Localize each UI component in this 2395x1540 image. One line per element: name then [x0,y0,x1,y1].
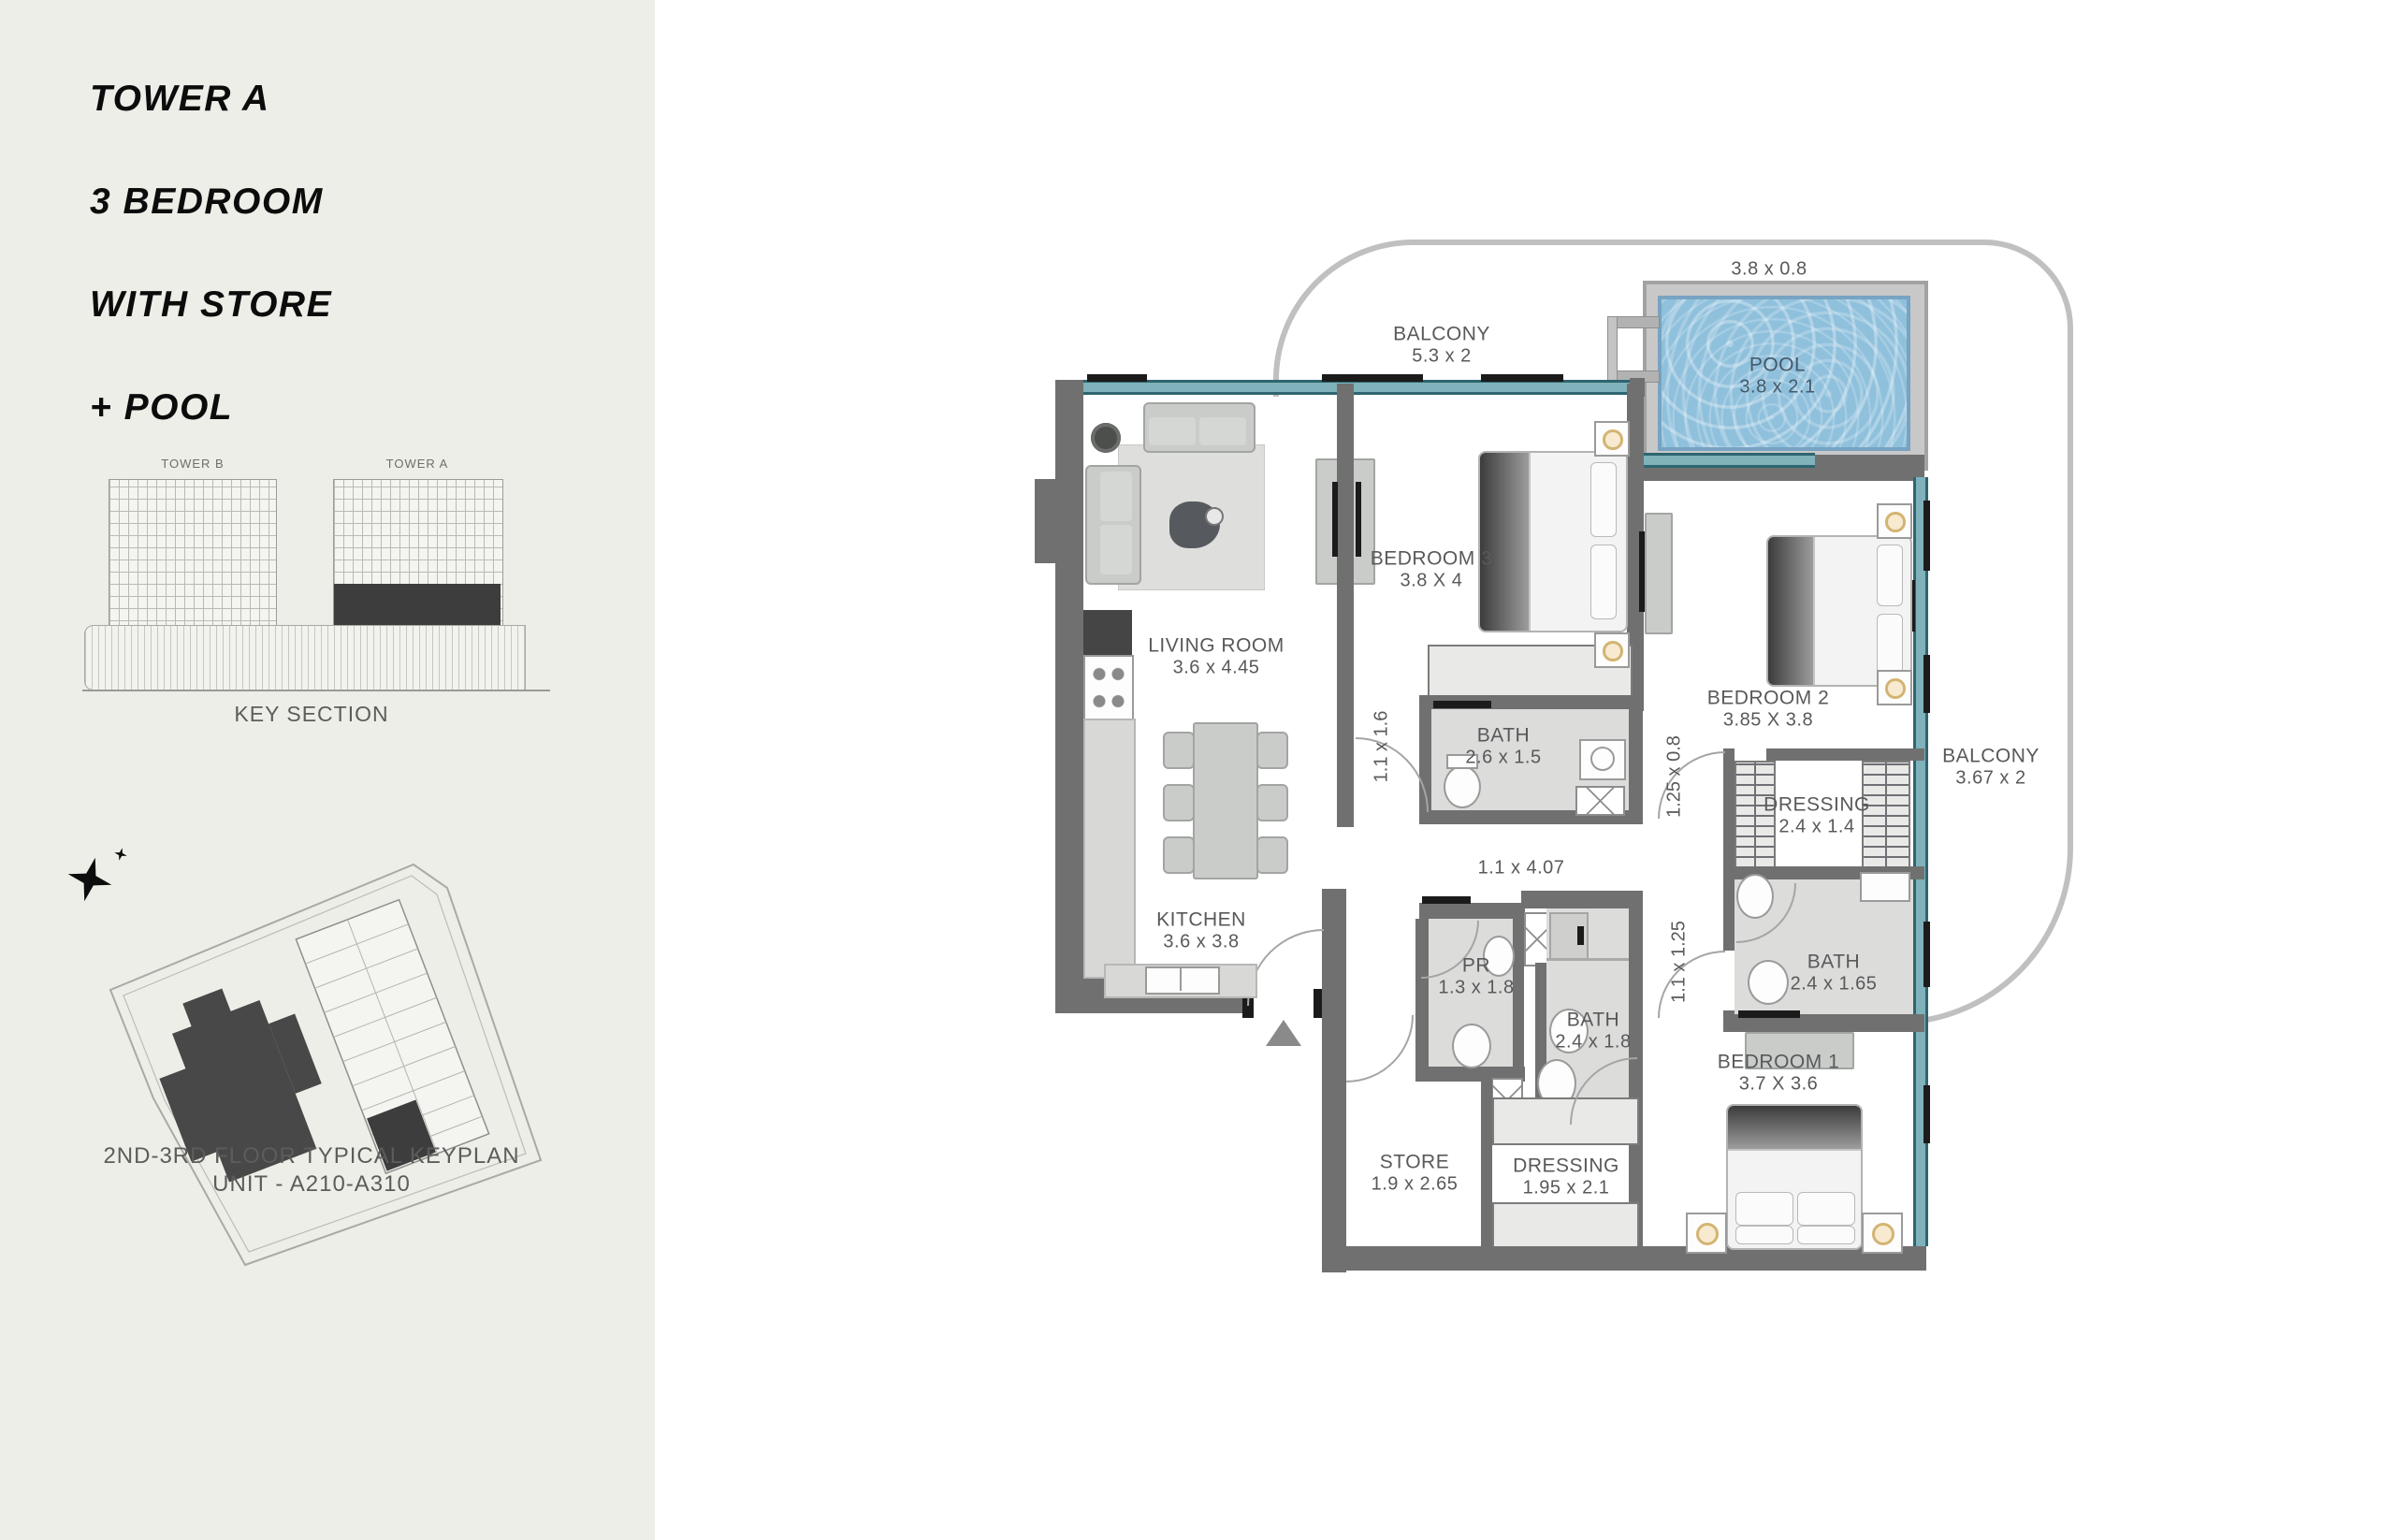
wall-entry-right [1322,889,1346,1272]
wall-pr-top [1419,903,1525,919]
glass-frame-mark [1923,922,1930,987]
wall-pr-right [1513,912,1524,1082]
kitchen-counter-left [1083,719,1136,979]
window-frame-mark [1087,374,1147,382]
label-passage-4: 1.1 x 1.25 [1669,921,1691,1003]
tv-mark [1332,482,1338,557]
bath26-sink [1590,747,1615,771]
bedroom3-bed [1478,451,1628,632]
kitchen-stove [1083,655,1134,720]
label-bedroom3: BEDROOM 3 3.8 X 4 [1371,548,1493,592]
bedroom1-nightstand-left [1686,1213,1727,1254]
label-bath165: BATH 2.4 x 1.65 [1791,952,1878,995]
bedroom1-bed [1726,1104,1863,1250]
kitchen-sink-divider [1180,968,1182,991]
bedroom2-top-window [1643,453,1815,468]
bath26-toilet [1444,765,1481,808]
glass-frame-mark [1923,1085,1930,1143]
dining-chair [1256,784,1288,821]
label-bedroom2: BEDROOM 2 3.85 X 3.8 [1707,688,1830,732]
bedroom2-lamp-bottom [1877,670,1912,705]
bedroom3-lamp-top [1594,421,1630,457]
bath165-vanity [1860,872,1910,902]
label-bath26: BATH 2.6 x 1.5 [1465,725,1541,769]
plant [1091,423,1121,453]
entrance-marker [1266,1020,1301,1046]
label-dressing24: DRESSING 2.4 x 1.4 [1764,794,1870,838]
glass-frame-mark [1923,655,1930,713]
bath165-door-mark [1738,1010,1800,1018]
window-frame-mark [1322,374,1423,382]
wall-left-step [1035,479,1055,563]
bedroom3-lamp-bottom [1594,632,1630,668]
wall-dressing24-top [1766,748,1924,761]
label-pool-deck: 3.8 x 0.8 [1731,259,1807,281]
label-balcony-right: BALCONY 3.67 x 2 [1942,746,2039,790]
wall-left [1055,380,1083,979]
wall-bath18-top [1521,891,1643,908]
label-living: LIVING ROOM 3.6 x 4.45 [1148,635,1285,679]
pr-toilet [1452,1024,1491,1068]
bath26-door-mark [1433,701,1491,708]
kitchen-hood [1083,610,1132,655]
window-frame-mark [1481,374,1563,382]
label-balcony-top: BALCONY 5.3 x 2 [1393,324,1490,368]
floorplan-page: TOWER A 3 BEDROOM WITH STORE + POOL TOWE… [0,0,2395,1540]
label-bedroom1: BEDROOM 1 3.7 X 3.6 [1718,1052,1840,1096]
dining-chair [1163,732,1195,769]
coffee-table-tray [1205,507,1224,526]
tv-mark [1356,482,1361,557]
label-pr: PR 1.3 x 1.8 [1438,955,1514,999]
bath18-divider [1546,958,1629,961]
bedroom2-console [1645,513,1673,634]
sofa-left [1085,465,1141,585]
pr-door-mark [1422,896,1471,904]
bedroom2-bed [1766,535,1912,687]
label-passage-1: 1.1 x 1.6 [1372,711,1393,783]
label-pool: POOL 3.8 x 2.1 [1739,355,1815,399]
bath26-shaft [1575,786,1625,816]
label-passage-3: 1.1 x 4.07 [1478,858,1565,879]
label-bath18: BATH 2.4 x 1.8 [1555,1010,1631,1053]
label-store: STORE 1.9 x 2.65 [1372,1152,1459,1196]
bath18-shower-head [1577,926,1584,945]
dining-chair [1163,836,1195,874]
dining-chair [1256,732,1288,769]
sofa-top [1143,402,1256,453]
label-passage-2: 1.25 x 0.8 [1664,735,1686,818]
dressing195-wardrobe-bottom [1492,1202,1639,1250]
floor-plan: BALCONY 5.3 x 2 3.8 x 0.8 POOL 3.8 x 2.1… [0,0,2395,1540]
dining-chair [1163,784,1195,821]
bedroom2-lamp-top [1877,503,1912,539]
wall-bath26-right [1629,695,1643,824]
dining-table [1193,722,1258,879]
kitchen-sink [1145,966,1220,995]
living-top-glass-wall [1083,380,1632,395]
label-kitchen: KITCHEN 3.6 x 3.8 [1156,909,1246,953]
bedroom2-tv-mark [1639,531,1645,612]
glass-frame-mark [1923,501,1930,571]
wall-living-bedroom3 [1337,384,1354,827]
bedroom1-nightstand-right [1862,1213,1903,1254]
dining-chair [1256,836,1288,874]
label-dressing195: DRESSING 1.95 x 2.1 [1513,1155,1619,1199]
bath165-toilet [1748,960,1789,1005]
wall-store-right [1481,1067,1492,1254]
